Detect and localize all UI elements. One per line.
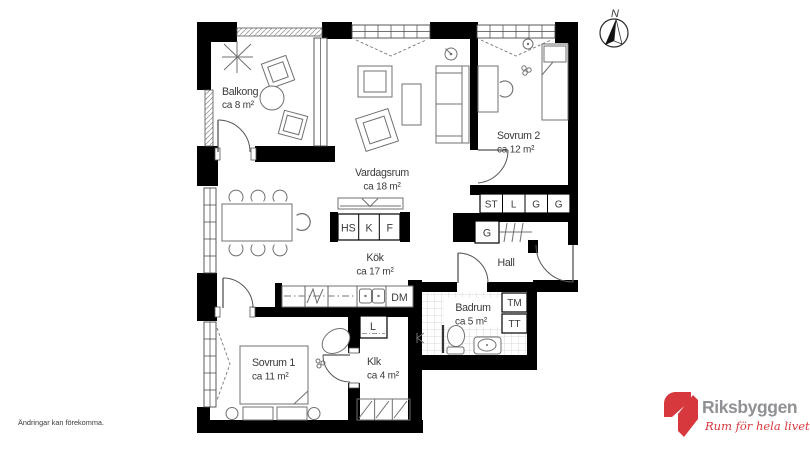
sovrum1-door — [223, 278, 253, 308]
closet-label: G — [555, 200, 563, 211]
room-area-sovrum1: ca 11 m² — [252, 372, 289, 383]
room-area-badrum: ca 5 m² — [455, 317, 488, 328]
closet-label: L — [511, 200, 517, 211]
logo-tagline-text: Rum för hela livet — [704, 419, 810, 433]
plant-icon — [222, 41, 253, 73]
dining-table — [222, 204, 292, 241]
bedroom1-furniture — [226, 323, 355, 420]
balcony-table — [260, 86, 284, 110]
room-label-badrum: Badrum — [455, 302, 491, 314]
appliance-label-f: F — [386, 223, 393, 235]
disclaimer-text: Ändringar kan förekomma. — [18, 418, 104, 427]
coat-rail-icon — [500, 223, 532, 242]
window-opening-dash-sovrum1 — [217, 328, 230, 400]
badrum-door — [458, 253, 488, 283]
bedroom2-furniture — [478, 39, 568, 120]
kitchen: HS K F DM — [222, 190, 413, 307]
room-label-balkong: Balkong — [222, 86, 259, 98]
balcony-railing-top — [237, 28, 322, 36]
kitchen-counter: DM — [282, 286, 413, 307]
side-table — [402, 84, 421, 125]
extractor-hood — [338, 198, 403, 209]
room-label-klk: Klk — [367, 356, 382, 368]
riksbyggen-logo: Riksbyggen Rum för hela livet — [664, 392, 810, 437]
compass: N — [600, 8, 628, 47]
closet-label-g: G — [483, 228, 491, 240]
logo-brand-text: Riksbyggen — [702, 397, 797, 417]
closet-label: G — [532, 200, 540, 211]
window-opening-dash-vardagsrum — [356, 40, 426, 56]
balcony-door — [218, 120, 250, 152]
sink-basin-icon — [474, 337, 501, 354]
toilet-icon — [447, 326, 465, 355]
dishwasher-label: DM — [391, 292, 407, 304]
livingroom-furniture — [356, 48, 469, 151]
floor-lamp-icon — [445, 48, 457, 60]
appliance-label-k: K — [365, 223, 372, 235]
sofa — [436, 66, 469, 143]
room-area-kok: ca 17 m² — [356, 267, 394, 278]
desk — [478, 66, 498, 112]
linen-closet-label: L — [370, 321, 376, 333]
room-area-vardagsrum: ca 18 m² — [363, 182, 401, 193]
floor-plan-svg: ST L G G G HS K F DM — [0, 0, 810, 455]
compass-north-label: N — [611, 8, 619, 20]
room-area-balkong: ca 8 m² — [222, 100, 255, 111]
floor-plan-page: ST L G G G HS K F DM — [0, 0, 810, 455]
appliance-label-hs: HS — [341, 223, 356, 235]
balcony-chair — [278, 110, 307, 139]
room-label-vardagsrum: Vardagsrum — [355, 167, 409, 179]
room-label-sovrum1: Sovrum 1 — [252, 357, 295, 369]
window-opening-dash-sovrum2 — [481, 40, 551, 56]
desk-chair — [500, 81, 513, 97]
room-label-kok: Kök — [366, 252, 384, 264]
klk-door — [323, 355, 350, 382]
entrance-door — [536, 245, 573, 282]
flower-icon — [522, 66, 531, 75]
washer-label: TM — [507, 298, 521, 309]
dryer-label: TT — [508, 319, 520, 330]
room-area-sovrum2: ca 12 m² — [497, 145, 535, 156]
coffee-table — [356, 109, 399, 152]
room-area-klk: ca 4 m² — [367, 371, 400, 382]
klk-fixtures: L — [357, 316, 410, 420]
balcony-chair — [261, 55, 294, 88]
room-label-hall: Hall — [497, 257, 514, 269]
wardrobe-row — [357, 399, 410, 420]
riksbyggen-logo-icon — [664, 392, 698, 437]
balcony-railing-left — [205, 90, 213, 146]
room-label-sovrum2: Sovrum 2 — [497, 130, 540, 142]
bed-sovrum2 — [542, 44, 568, 120]
closet-label: ST — [485, 200, 498, 211]
